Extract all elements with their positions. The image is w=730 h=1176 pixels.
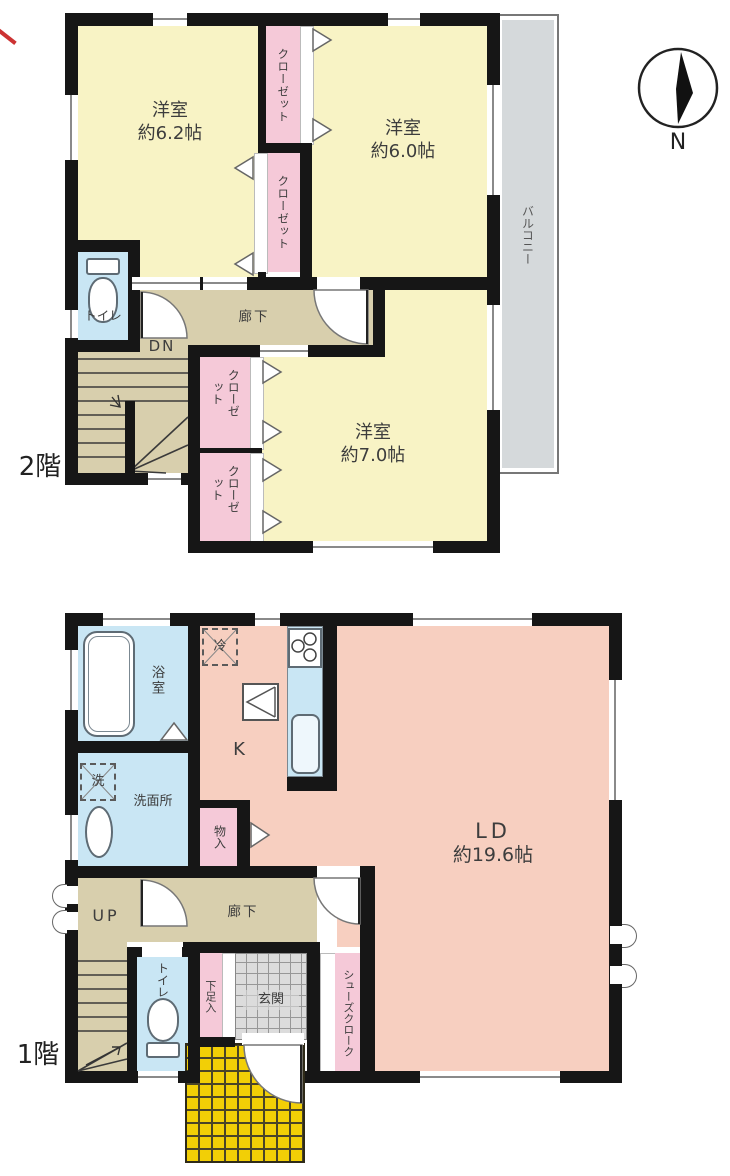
storage-door-triangle — [250, 822, 270, 848]
closet-door-triangle — [262, 420, 282, 444]
window-f1-top-bath — [103, 613, 170, 626]
toilet-tank-f2 — [86, 258, 120, 275]
window-f2-toilet — [65, 310, 78, 338]
storage-label: 物入 — [207, 814, 231, 860]
window-f1-bottom-toilet — [138, 1071, 178, 1083]
door-arc-f1-hallway-left — [141, 880, 187, 926]
hallway-f1-label: 廊下 — [213, 901, 273, 923]
closet-top-2-door — [254, 153, 268, 274]
compass-icon — [637, 47, 719, 129]
window-f2-left-1 — [65, 95, 78, 160]
window-f2-top-1 — [153, 13, 187, 26]
toilet-tank-f1 — [146, 1042, 180, 1058]
closet-door-triangle — [262, 458, 282, 482]
window-f2-bottom-stairs — [148, 473, 181, 485]
floor1-label: 1階 — [8, 1038, 68, 1072]
window-f1-top-ld — [413, 613, 532, 626]
closet-top-1-label: クローゼット — [271, 33, 295, 137]
washer-label: 洗 — [80, 763, 116, 801]
closet-door-triangle — [262, 510, 282, 534]
floor-plan: 洋室 約6.2帖 洋室 約6.0帖 洋室 約7.0帖 クローゼット クローゼット… — [0, 0, 730, 1176]
room-62-label: 洋室 約6.2帖 — [95, 100, 245, 145]
compass-north-label: N — [637, 130, 719, 156]
stairs-f2 — [78, 345, 188, 473]
window-f2-right-2 — [487, 305, 500, 410]
ld-name: LD — [475, 818, 511, 844]
bathroom-label: 浴室 — [143, 655, 169, 705]
prep-counter-symbol — [242, 683, 279, 721]
room-70-size: 約7.0帖 — [341, 445, 406, 468]
washbasin-icon — [85, 806, 113, 858]
room-60-label: 洋室 約6.0帖 — [328, 118, 478, 163]
red-annotation-mark — [0, 27, 17, 45]
window-f1-top-kitchen — [255, 613, 280, 626]
vent-icon — [622, 964, 637, 988]
closet-top-2-label: クローゼット — [271, 160, 295, 264]
stairs-down-label: DN — [140, 336, 184, 356]
closet-door-triangle — [234, 156, 254, 180]
bath-door-triangle — [160, 722, 188, 741]
window-f1-right-ld — [609, 680, 622, 800]
door-f1-hallway-gap — [317, 866, 360, 878]
fridge-label: 冷 — [202, 628, 238, 666]
hallway-f2-label: 廊下 — [224, 306, 284, 328]
bathtub-inner — [88, 636, 130, 732]
window-f1-left-bath — [65, 650, 78, 710]
stove-icon — [288, 628, 322, 668]
closet-low-2-label: クローゼット — [203, 462, 247, 516]
room-60-size: 約6.0帖 — [371, 141, 436, 164]
vent-icon — [622, 924, 637, 948]
closet-door-triangle — [234, 252, 254, 276]
entrance-label: 玄関 — [243, 990, 299, 1010]
window-f2-top-2 — [388, 13, 420, 26]
kitchen-area-b — [287, 791, 337, 866]
closet-door-triangle — [262, 360, 282, 384]
room-60-name: 洋室 — [385, 118, 421, 141]
window-f2-bottom-room70 — [313, 541, 433, 553]
door-f2-room60-gap — [317, 277, 360, 290]
shoe-box-label: 下足入 — [199, 968, 221, 1024]
kitchen-label: K — [222, 738, 256, 762]
stairs-f1 — [78, 947, 127, 1071]
entrance-door-gap — [242, 1033, 304, 1045]
vent-icon — [52, 910, 67, 934]
toilet-f2-label: トイレ — [79, 306, 127, 326]
room-70-name: 洋室 — [355, 422, 391, 445]
closet-door-triangle — [312, 28, 332, 52]
window-f2-right-1 — [487, 85, 500, 195]
living-dining-area — [337, 626, 609, 947]
room-yoshitsu-7-0-upper — [385, 290, 487, 357]
room-62-name: 洋室 — [152, 100, 188, 123]
balcony-label: バルコニー — [514, 185, 540, 285]
ld-size: 約19.6帖 — [453, 844, 533, 868]
door-f2-room62-b — [203, 277, 247, 290]
washroom-label: 洗面所 — [118, 792, 188, 812]
floor2-label: 2階 — [10, 450, 70, 484]
ld-label: LD 約19.6帖 — [418, 818, 568, 868]
closet-low-1-label: クローゼット — [203, 366, 247, 420]
door-arc-f2-hallway-left — [141, 292, 187, 338]
room-62-size: 約6.2帖 — [138, 123, 203, 146]
vent-icon — [52, 884, 67, 908]
room-70-label: 洋室 約7.0帖 — [298, 422, 448, 467]
kitchen-sink-icon — [291, 714, 320, 774]
stairs-up-label: UP — [84, 905, 128, 927]
toilet-f1-label: トイレ — [150, 952, 174, 1008]
door-arc-f2-room60 — [314, 290, 368, 344]
door-f2-room70-gap — [260, 345, 308, 357]
entrance-door-arc — [244, 1045, 302, 1103]
window-f1-left-wash — [65, 815, 78, 860]
door-f2-room62-a — [132, 277, 200, 290]
living-dining-area-b — [375, 947, 609, 1071]
door-arc-f1-ld — [314, 878, 360, 924]
window-f1-bottom-ld — [420, 1071, 560, 1083]
shoe-closet-label: シューズクローク — [336, 955, 360, 1071]
